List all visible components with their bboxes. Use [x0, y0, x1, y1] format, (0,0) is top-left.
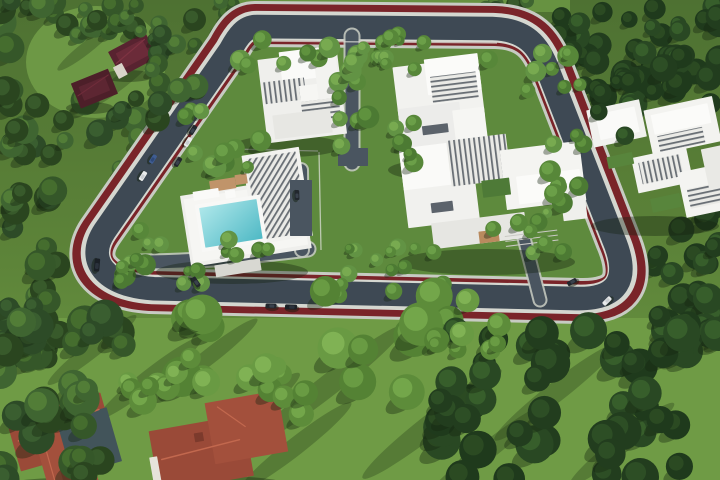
scene-svg: [0, 0, 720, 480]
tree-highlight: [130, 92, 139, 101]
tree-highlight: [185, 11, 198, 24]
tree-highlight: [154, 27, 165, 38]
tree-highlight: [699, 68, 713, 82]
tree-highlight: [594, 86, 605, 97]
tree-highlight: [598, 442, 615, 459]
tree-highlight: [80, 3, 88, 11]
tree-highlight: [563, 48, 571, 56]
tree-highlight: [607, 334, 621, 348]
tree-highlight: [647, 85, 656, 94]
tree-highlight: [342, 267, 351, 276]
tree-highlight: [586, 52, 600, 66]
tree-highlight: [252, 132, 264, 144]
tree-highlight: [55, 112, 66, 123]
tree-highlight: [144, 239, 151, 246]
tree-highlight: [178, 277, 186, 285]
tree-highlight: [571, 179, 582, 190]
tree-highlight: [547, 137, 557, 147]
tree-highlight: [313, 279, 330, 296]
tree-highlight: [409, 64, 417, 72]
tree-highlight: [334, 113, 342, 121]
tree-highlight: [632, 380, 651, 399]
tree-highlight: [532, 215, 542, 225]
tree-highlight: [28, 253, 45, 270]
villa-central-block: [481, 178, 511, 198]
tree-highlight: [546, 186, 557, 197]
tree-highlight: [131, 254, 139, 262]
tree-highlight: [663, 264, 676, 277]
tree-highlight: [7, 121, 20, 134]
villa-top-right-block: [430, 71, 479, 102]
tree-highlight: [490, 337, 500, 347]
tree-highlight: [594, 4, 605, 15]
tree-highlight: [671, 22, 683, 34]
tree-highlight: [571, 15, 583, 27]
tree-highlight: [5, 404, 22, 421]
tree-highlight: [404, 307, 428, 331]
car-roof: [289, 305, 295, 308]
tree-highlight: [78, 381, 91, 394]
tree-highlight: [146, 64, 155, 73]
tree-highlight: [241, 58, 250, 67]
tree-highlight: [650, 248, 661, 259]
tree-highlight: [343, 367, 363, 387]
tree-highlight: [411, 244, 418, 251]
villa-pool-block: [234, 173, 247, 185]
tree-highlight: [472, 361, 490, 379]
tree-highlight: [358, 43, 365, 50]
tree-highlight: [418, 37, 426, 45]
tree-highlight: [543, 209, 549, 215]
tree-highlight: [559, 81, 567, 89]
tree-highlight: [653, 57, 668, 72]
tree-highlight: [452, 324, 465, 337]
tree-highlight: [191, 264, 200, 273]
tree-highlight: [512, 216, 522, 226]
tree-highlight: [407, 116, 416, 125]
tree-highlight: [243, 162, 250, 169]
tree-highlight: [527, 368, 542, 383]
tree-highlight: [278, 57, 286, 65]
tree-highlight: [651, 308, 663, 320]
tree-highlight: [333, 92, 341, 100]
tree-highlight: [554, 9, 565, 20]
tree-highlight: [667, 318, 687, 338]
tree-highlight: [455, 407, 471, 423]
tree-highlight: [394, 135, 404, 145]
tree-highlight: [624, 353, 637, 366]
tree-highlight: [696, 287, 713, 304]
tree-highlight: [346, 54, 357, 65]
tree-highlight: [43, 146, 55, 158]
tree-highlight: [528, 63, 540, 75]
tree-highlight: [387, 265, 394, 272]
tree-highlight: [168, 366, 179, 377]
tree-highlight: [623, 13, 632, 22]
tree-highlight: [230, 249, 239, 258]
tree-highlight: [346, 245, 352, 251]
tree-highlight: [58, 134, 67, 143]
tree-highlight: [255, 356, 271, 372]
tree-highlight: [321, 39, 333, 51]
tree-highlight: [420, 281, 440, 301]
buildings-right-edge-shadow: [591, 216, 719, 236]
tree-highlight: [334, 139, 344, 149]
tree-highlight: [301, 46, 310, 55]
tree-highlight: [399, 261, 407, 269]
tree-highlight: [26, 299, 36, 309]
tree-highlight: [669, 456, 684, 471]
tree-highlight: [154, 238, 163, 247]
tree-highlight: [179, 109, 189, 119]
tree-highlight: [384, 31, 393, 40]
tree-highlight: [571, 130, 579, 138]
tree-highlight: [142, 379, 152, 389]
tree-highlight: [150, 94, 164, 108]
tree-highlight: [458, 291, 471, 304]
tree-highlight: [222, 232, 232, 242]
tree-highlight: [89, 122, 104, 137]
tree-highlight: [635, 43, 648, 56]
tree-highlight: [535, 46, 545, 56]
tree-highlight: [195, 105, 204, 114]
tree-highlight: [707, 239, 718, 250]
tree-highlight: [73, 416, 88, 431]
tree-highlight: [556, 245, 566, 255]
tree-highlight: [114, 335, 127, 348]
tree-highlight: [405, 149, 412, 156]
tree-highlight: [646, 21, 655, 30]
tree-highlight: [387, 284, 396, 293]
tree-highlight: [136, 26, 143, 33]
tree-highlight: [184, 267, 190, 273]
parking-pads-block: [290, 180, 312, 236]
tree-highlight: [386, 247, 392, 253]
tree-highlight: [1, 300, 12, 311]
tree-highlight: [381, 59, 387, 65]
tree-highlight: [527, 247, 535, 255]
tree-highlight: [58, 16, 71, 29]
tree-highlight: [275, 388, 287, 400]
tree-highlight: [41, 179, 57, 195]
tree-highlight: [359, 108, 372, 121]
tree-highlight: [253, 243, 262, 252]
tree-highlight: [10, 311, 26, 327]
tree-highlight: [393, 378, 413, 398]
tree-highlight: [351, 338, 368, 355]
tree-highlight: [389, 122, 398, 131]
tree-highlight: [189, 39, 197, 47]
tree-highlight: [295, 383, 309, 397]
tree-highlight: [612, 394, 628, 410]
villa-central-shadow: [399, 249, 575, 275]
tree-highlight: [509, 423, 523, 437]
tree-highlight: [574, 316, 594, 336]
tree-highlight: [27, 96, 40, 109]
tree-highlight: [528, 320, 547, 339]
tree-highlight: [463, 435, 484, 456]
tree-highlight: [82, 323, 95, 336]
tree-highlight: [255, 32, 265, 42]
tree-highlight: [195, 371, 210, 386]
tree-highlight: [188, 147, 197, 156]
tree-highlight: [72, 448, 86, 462]
tree-highlight: [482, 52, 492, 62]
tree-highlight: [539, 237, 548, 246]
tree-highlight: [38, 239, 50, 251]
tree-highlight: [612, 76, 620, 84]
tree-highlight: [28, 392, 47, 411]
tree-highlight: [431, 391, 444, 404]
tree-highlight: [592, 105, 602, 115]
tree-highlight: [547, 63, 555, 71]
tree-highlight: [618, 128, 628, 138]
tree-highlight: [541, 163, 553, 175]
tree-highlight: [322, 332, 345, 355]
tree-highlight: [115, 275, 124, 284]
tree-highlight: [430, 338, 439, 347]
aerial-render-image: [0, 0, 720, 480]
tree-highlight: [170, 81, 184, 95]
tree-highlight: [487, 223, 496, 232]
tree-highlight: [575, 80, 582, 87]
tree-highlight: [14, 185, 25, 196]
tree-highlight: [73, 465, 88, 480]
tree-highlight: [646, 0, 658, 12]
tree-highlight: [117, 262, 125, 270]
car-roof: [295, 193, 298, 198]
tree-highlight: [182, 350, 193, 361]
tree-highlight: [531, 399, 549, 417]
tree-highlight: [672, 49, 684, 61]
car-roof: [269, 304, 274, 307]
villa-pool-block: [225, 189, 236, 198]
tree-highlight: [428, 246, 437, 255]
car-roof: [95, 263, 99, 269]
tree-highlight: [371, 255, 378, 262]
tree-highlight: [186, 299, 206, 319]
house-red-roof-center-block: [194, 432, 204, 442]
tree-highlight: [123, 380, 135, 392]
tree-highlight: [114, 103, 125, 114]
tree-highlight: [622, 74, 634, 86]
tree-highlight: [89, 12, 100, 23]
tree-highlight: [439, 370, 457, 388]
tree-highlight: [649, 409, 664, 424]
tree-highlight: [522, 85, 530, 93]
tree-highlight: [263, 244, 270, 251]
tree-highlight: [490, 315, 503, 328]
tree-highlight: [134, 224, 143, 233]
tree-highlight: [216, 145, 228, 157]
